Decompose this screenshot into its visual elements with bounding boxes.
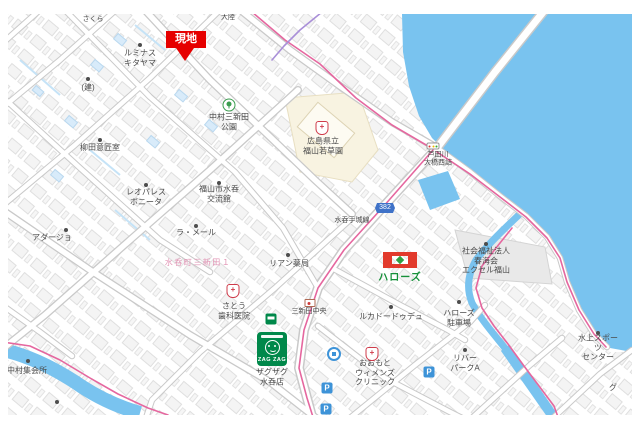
park-tree-icon: [223, 99, 236, 112]
parking-icon: P: [424, 367, 435, 378]
poi-dot: [217, 181, 221, 185]
frame-bottom: [0, 415, 640, 429]
poi-dot: [194, 224, 198, 228]
zagzag-marker-icon: [266, 314, 277, 325]
map-canvas: + + + 382 P P P ハローズ ZAG ZAG さくら 大陸 ルミナス…: [0, 0, 640, 429]
zagzag-smiley-icon: [265, 340, 280, 355]
route-badge-382: 382: [375, 203, 395, 213]
location-map: + + + 382 P P P ハローズ ZAG ZAG さくら 大陸 ルミナス…: [0, 0, 640, 429]
poi-dot: [138, 43, 142, 47]
poi-dot: [457, 300, 461, 304]
parking-icon: P: [321, 404, 332, 415]
facility-shield-icon: +: [316, 121, 329, 135]
poi-dot: [98, 138, 102, 142]
bus-stop-icon: [327, 347, 341, 361]
frame-top: [0, 0, 640, 14]
site-location-marker: 現地: [166, 31, 206, 48]
poi-dot: [484, 242, 488, 246]
poi-dot: [389, 305, 393, 309]
poi-dot: [26, 359, 30, 363]
site-location-marker-arrow: [176, 48, 194, 61]
zagzag-logo-text: ZAG ZAG: [257, 357, 287, 363]
poi-dot: [64, 228, 68, 232]
parking-icon: P: [322, 383, 333, 394]
zagzag-logo: ZAG ZAG: [257, 332, 287, 366]
poi-dot: [596, 331, 600, 335]
poi-dot: [286, 253, 290, 257]
clinic-shield-icon: +: [366, 347, 379, 361]
traffic-signal-icon: [427, 143, 440, 150]
zagzag-logo-tagline-band: [261, 335, 283, 338]
bus-stop-sign-icon: [305, 299, 316, 307]
halows-logo-text: ハローズ: [378, 269, 422, 284]
frame-left: [0, 0, 8, 429]
map-graphics: [0, 0, 640, 429]
poi-dot: [86, 77, 90, 81]
frame-right: [632, 0, 640, 429]
halows-logo: [383, 252, 417, 268]
poi-dot: [144, 183, 148, 187]
poi-dot: [463, 348, 467, 352]
poi-dot: [55, 400, 59, 404]
dental-clinic-shield-icon: +: [227, 284, 240, 298]
